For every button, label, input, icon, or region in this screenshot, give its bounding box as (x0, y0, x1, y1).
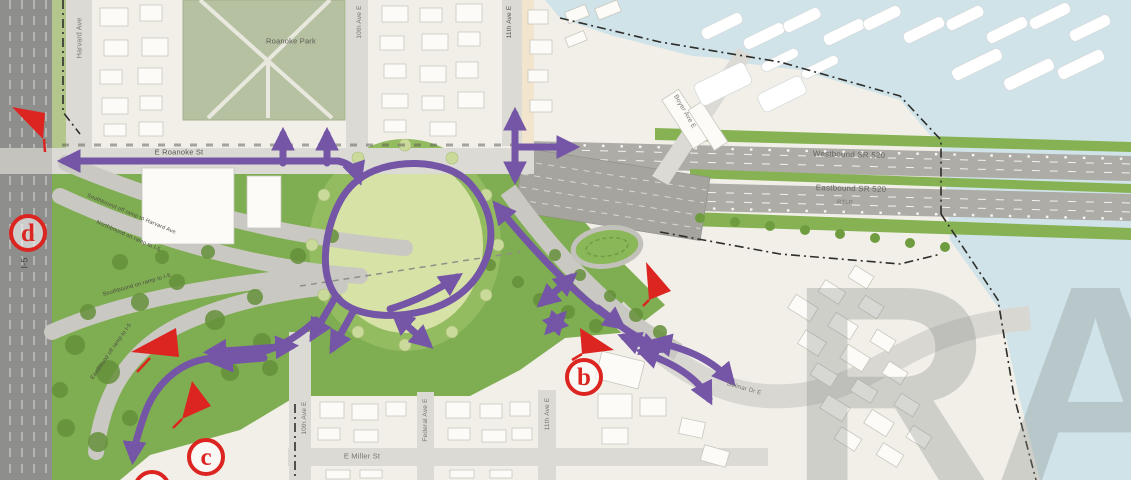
basemap-svg (0, 0, 1131, 480)
roanoke-park-area (183, 0, 345, 120)
green-strip (52, 0, 66, 150)
interchange-plan-map: Harvard AveRoanoke Park10th Ave E11th Av… (0, 0, 1131, 480)
i5-freeway (0, 0, 52, 480)
